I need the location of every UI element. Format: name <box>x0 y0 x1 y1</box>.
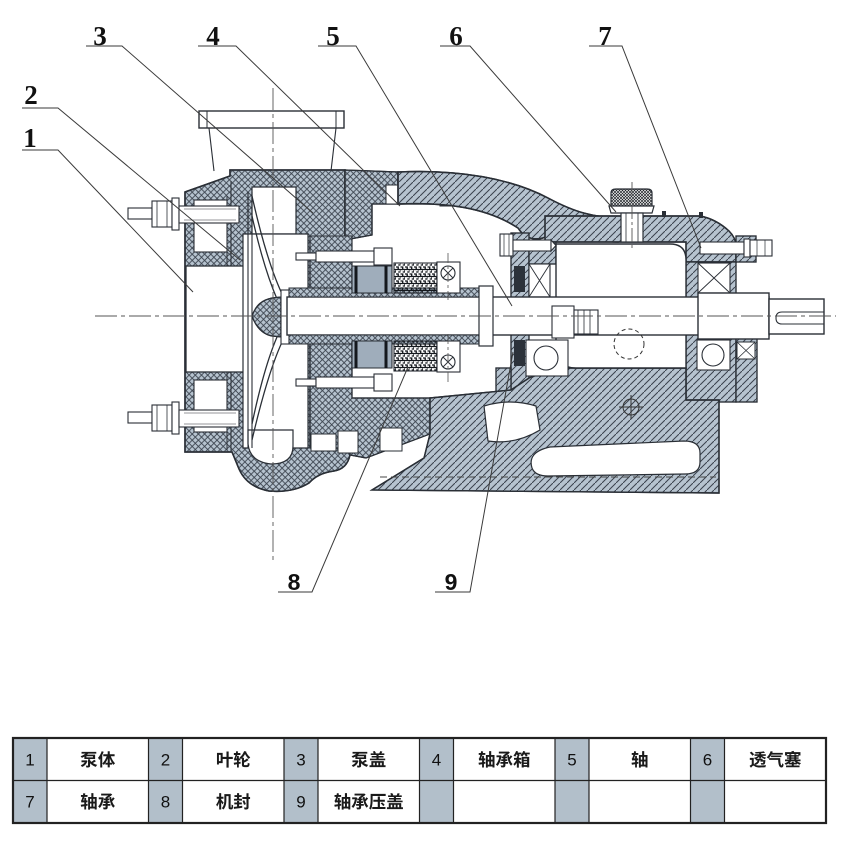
svg-text:2: 2 <box>24 80 38 110</box>
svg-text:9: 9 <box>296 793 305 812</box>
svg-text:3: 3 <box>93 21 107 51</box>
svg-text:5: 5 <box>567 751 576 770</box>
svg-text:6: 6 <box>703 751 712 770</box>
svg-text:3: 3 <box>296 751 305 770</box>
svg-text:2: 2 <box>161 751 170 770</box>
svg-text:7: 7 <box>25 793 34 812</box>
svg-text:4: 4 <box>432 751 441 770</box>
svg-text:1: 1 <box>25 751 34 770</box>
svg-text:8: 8 <box>288 569 301 595</box>
svg-text:8: 8 <box>161 793 170 812</box>
svg-text:5: 5 <box>326 21 340 51</box>
svg-text:9: 9 <box>445 569 458 595</box>
svg-text:4: 4 <box>206 21 220 51</box>
svg-text:1: 1 <box>23 123 37 153</box>
svg-text:6: 6 <box>449 21 463 51</box>
svg-text:7: 7 <box>598 21 612 51</box>
